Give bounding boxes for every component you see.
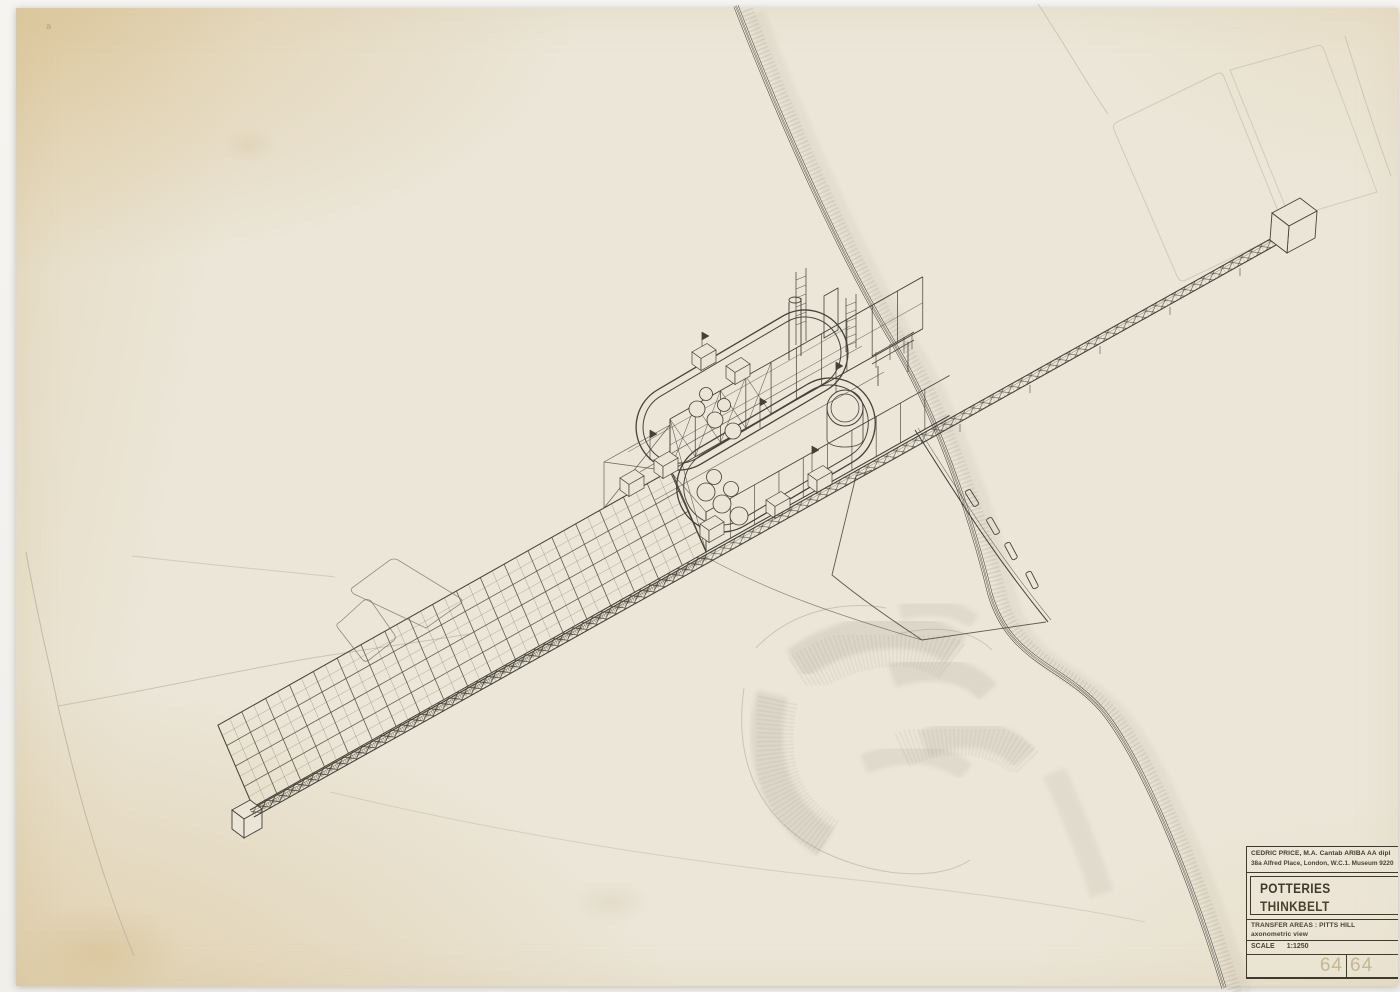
scale-row: SCALE1:1250 [1247, 941, 1398, 955]
archive-number-right: 64 [1347, 955, 1376, 976]
architect-name: CEDRIC PRICE, M.A. Cantab ARIBA AA dipl [1251, 849, 1398, 859]
project-title-row: POTTERIES THINKBELT [1247, 873, 1398, 920]
paper-stain [221, 126, 277, 164]
architect-address: 38a Alfred Place, London, W.C.1. Museum … [1251, 859, 1398, 869]
drawing-title-line2: axonometric view [1251, 931, 1398, 940]
project-title-line2: THINKBELT [1260, 898, 1381, 916]
archive-number-left: 64 [1317, 955, 1346, 976]
scale-value: 1:1250 [1287, 943, 1309, 950]
paper-stain [572, 880, 652, 924]
scale-label: SCALE [1251, 943, 1275, 950]
architect-stamp: CEDRIC PRICE, M.A. Cantab ARIBA AA dipl … [1247, 847, 1398, 873]
project-title-line1: POTTERIES [1260, 880, 1381, 898]
drawing-title-line1: TRANSFER AREAS : PITTS HILL [1251, 922, 1398, 931]
archive-number-row: 64 64 [1247, 955, 1398, 978]
project-title-box: POTTERIES THINKBELT [1250, 876, 1398, 915]
paper-sheet: a [16, 8, 1398, 986]
title-block: CEDRIC PRICE, M.A. Cantab ARIBA AA dipl … [1246, 846, 1398, 979]
pencil-corner-mark: a [45, 21, 51, 32]
paper-stain [22, 904, 182, 992]
scanned-drawing-page: a [0, 0, 1400, 992]
drawing-title: TRANSFER AREAS : PITTS HILL axonometric … [1247, 920, 1398, 941]
